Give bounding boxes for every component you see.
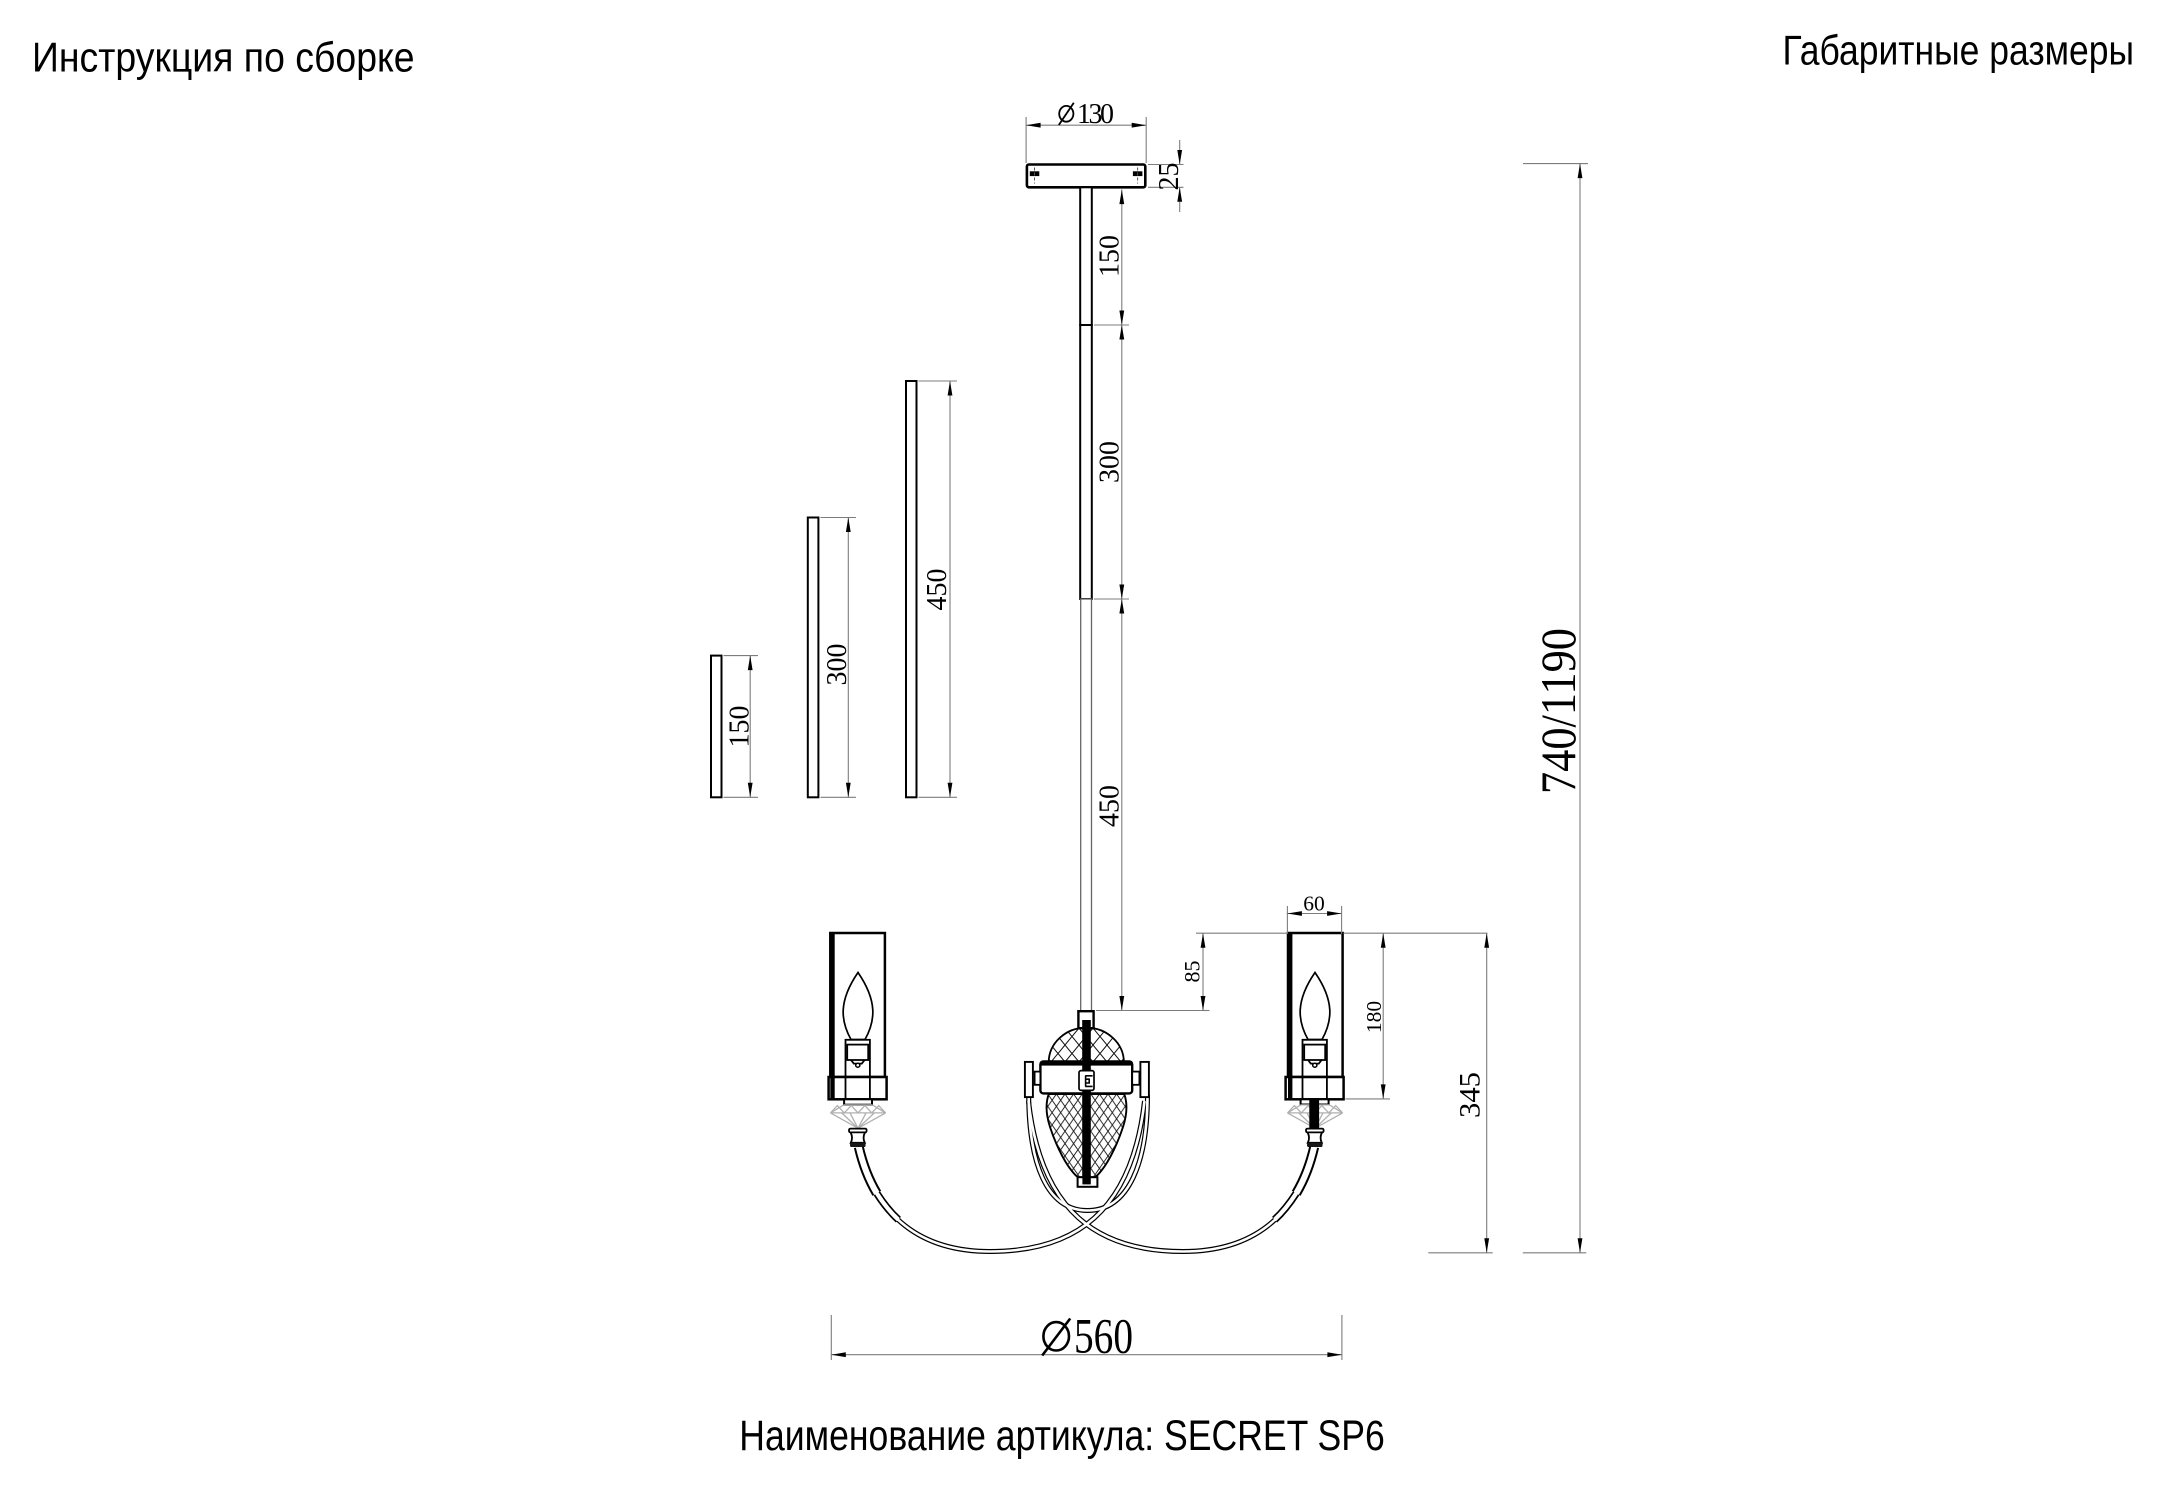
svg-text:150: 150 <box>1095 235 1126 277</box>
svg-text:450: 450 <box>922 569 953 611</box>
svg-text:130: 130 <box>1077 99 1114 130</box>
svg-text:60: 60 <box>1303 892 1325 916</box>
svg-text:180: 180 <box>1362 1001 1386 1033</box>
svg-text:560: 560 <box>1074 1308 1133 1364</box>
svg-text:25: 25 <box>1154 163 1185 191</box>
svg-text:740/1190: 740/1190 <box>1530 628 1586 794</box>
svg-text:300: 300 <box>1095 441 1126 483</box>
svg-text:300: 300 <box>822 644 853 686</box>
svg-text:Наименование артикула: SECRET: Наименование артикула: SECRET SP6 <box>739 1413 1385 1460</box>
svg-text:Инструкция по сборке: Инструкция по сборке <box>32 33 415 80</box>
svg-text:345: 345 <box>1454 1072 1487 1118</box>
svg-text:450: 450 <box>1095 785 1126 827</box>
svg-text:150: 150 <box>725 706 756 748</box>
svg-text:85: 85 <box>1180 961 1205 983</box>
svg-text:Габаритные размеры: Габаритные размеры <box>1783 27 2135 74</box>
